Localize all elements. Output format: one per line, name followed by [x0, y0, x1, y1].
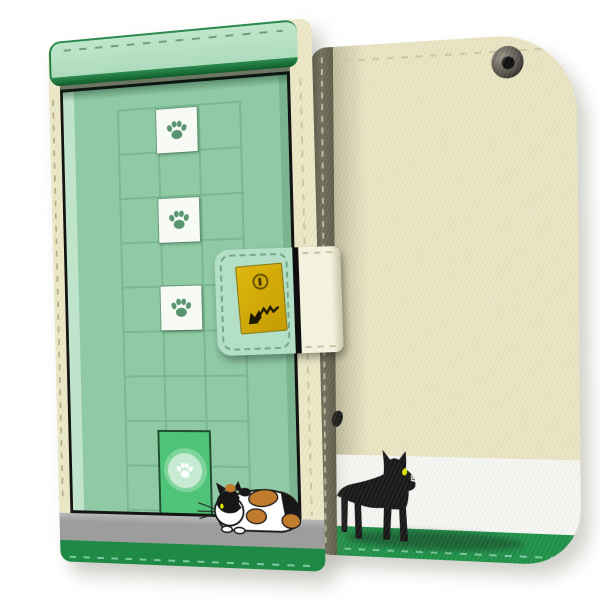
camera-eyelet — [491, 45, 523, 79]
calico-eye — [220, 503, 224, 509]
charm-snap-button — [251, 273, 268, 290]
charm-cat-doodle-icon — [242, 296, 282, 329]
rail-stitching — [64, 30, 283, 52]
calico-whiskers — [198, 503, 215, 519]
paw-tile-3 — [160, 285, 202, 330]
calico-cat-illustration — [196, 472, 310, 546]
paw-icon — [174, 459, 195, 480]
strap-cream-section — [298, 246, 344, 353]
strap-green-section — [214, 248, 296, 357]
paw-icon — [168, 295, 194, 322]
door-frame-light-strip — [63, 92, 84, 511]
back-case — [311, 31, 582, 566]
paw-icon — [166, 207, 192, 234]
black-cat-illustration — [332, 444, 432, 550]
closure-strap — [214, 246, 344, 356]
strap-charm — [235, 263, 288, 335]
camera-hole — [501, 55, 514, 69]
front-base-stitching — [70, 556, 316, 567]
black-cat-body — [336, 449, 416, 542]
product-photo-cat-phone-case — [0, 0, 600, 600]
paw-tile-2 — [158, 197, 200, 243]
paw-icon — [164, 116, 190, 144]
paw-tile-1 — [156, 107, 198, 154]
